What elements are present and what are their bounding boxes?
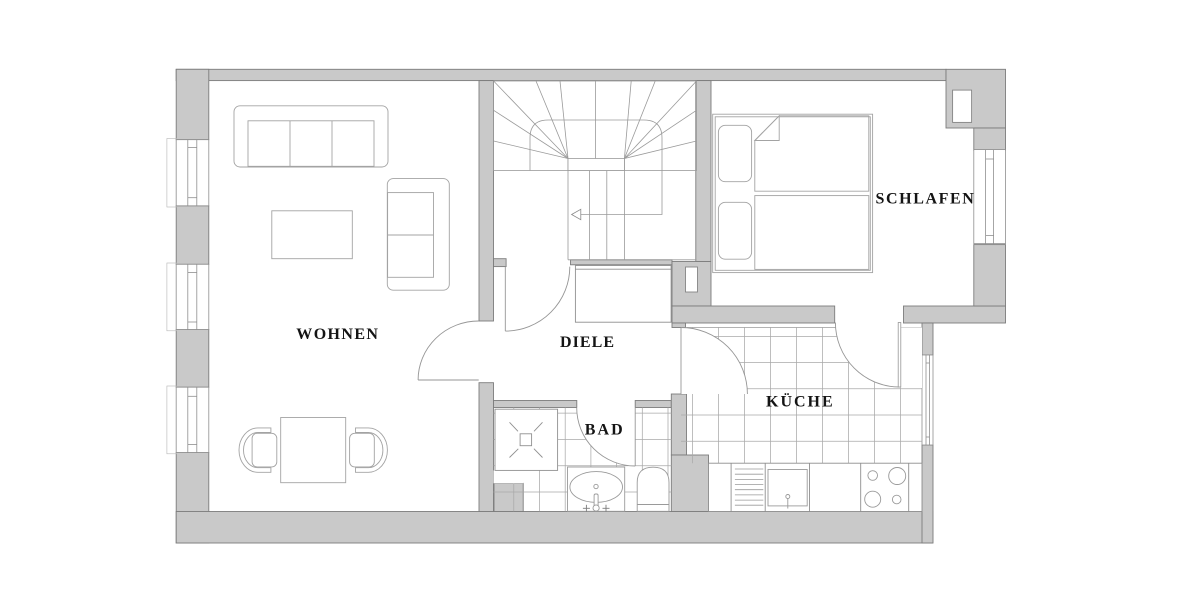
svg-text:SCHLAFEN: SCHLAFEN — [876, 191, 976, 208]
svg-text:WOHNEN: WOHNEN — [296, 326, 379, 343]
svg-text:DIELE: DIELE — [560, 334, 615, 351]
svg-text:KÜCHE: KÜCHE — [766, 392, 835, 410]
svg-text:BAD: BAD — [585, 422, 625, 439]
